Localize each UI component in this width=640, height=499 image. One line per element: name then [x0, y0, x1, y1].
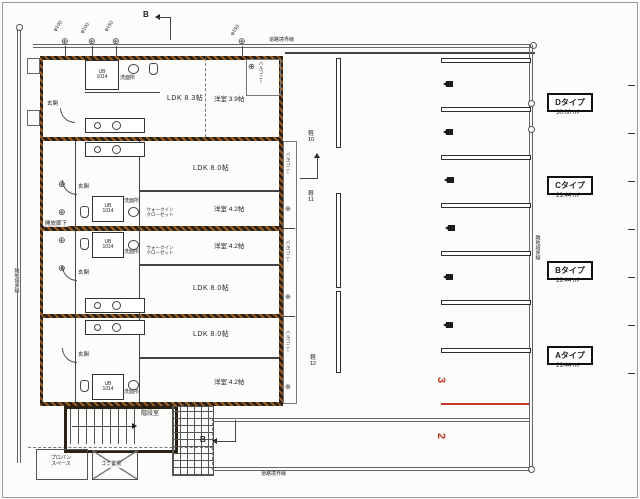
closet-label-line2: クローゼット — [147, 250, 174, 255]
sink-icon — [94, 146, 101, 153]
pipe-icon: ⊕ — [238, 37, 246, 46]
wall-unit-divider — [43, 137, 279, 141]
stairwell-label: 階段室 — [140, 411, 160, 418]
boundary-label-neighbor-left: 隣地境界線 — [12, 268, 20, 293]
unit-bath: UB 1014 — [92, 374, 124, 400]
drain-icon: ⊕ — [58, 208, 66, 217]
dimension-tick — [628, 133, 635, 134]
room-label-bedroom: 洋室 3.9帖 — [214, 96, 244, 103]
room-label-bedroom: 洋室 4.2帖 — [214, 243, 244, 250]
room-partition-line — [140, 264, 279, 266]
balcony-label: バルコニー — [258, 61, 263, 84]
kitchen-counter — [85, 118, 145, 133]
propane-label: プロパン スペース — [40, 456, 82, 467]
parking-space-marker — [447, 177, 454, 183]
burner-icon — [112, 121, 121, 130]
hall-partition-line — [139, 141, 140, 402]
parking-divider-vertical — [336, 58, 341, 148]
wall-left — [40, 56, 43, 406]
section-mark-line — [235, 420, 236, 442]
toilet-icon — [149, 63, 158, 75]
entrance-label: 玄関 — [78, 352, 89, 358]
corridor-label: 開放廊下 — [44, 221, 68, 227]
pipe-stem — [116, 46, 117, 56]
pipe-stem — [92, 46, 93, 56]
type-area-b: 29.44 m² — [547, 278, 589, 284]
parking-divider-vertical — [336, 193, 341, 288]
section-mark-line — [157, 17, 171, 18]
type-area-c: 29.44 m² — [547, 193, 589, 199]
dimension-tick — [628, 85, 635, 86]
boundary-circle — [528, 126, 535, 133]
pipe-stem — [65, 46, 66, 56]
drain-icon: ⊕ — [285, 293, 291, 302]
parking-space-marker — [446, 129, 453, 135]
bath-size-label: 1014 — [102, 387, 113, 393]
meter-box — [27, 58, 40, 74]
burner-icon — [112, 323, 121, 332]
entry-arrow-line — [300, 178, 318, 179]
kei-number: 11 — [303, 197, 319, 203]
parking-divider — [441, 203, 531, 208]
balcony-label: バルコニー — [285, 330, 290, 353]
fence-line-top — [285, 52, 535, 54]
washroom-label: 洗面所 — [120, 76, 135, 82]
washbasin-icon — [128, 380, 139, 390]
boundary-line-left — [17, 27, 21, 463]
washbasin-icon — [128, 64, 139, 74]
stair-runner-line — [72, 426, 132, 427]
unit-bath: UB 1014 — [92, 196, 124, 222]
burner-icon — [112, 145, 121, 154]
section-mark-line — [214, 441, 235, 442]
entrance-label: 玄関 — [78, 270, 89, 276]
kei-number: 10 — [303, 137, 319, 143]
entrance-label: 玄関 — [47, 101, 58, 107]
washbasin-icon — [128, 207, 139, 217]
boundary-label-road-top: 道路境界線 — [268, 38, 295, 44]
unit-bath: UB 1014 — [92, 232, 124, 258]
section-mark-label: B — [200, 436, 206, 445]
balcony-strip — [283, 141, 297, 404]
stair-direction-arrow — [132, 423, 140, 429]
propane-label-line2: スペース — [51, 461, 70, 467]
meter-box — [27, 110, 40, 126]
garbage-label: ゴミ置場 — [100, 462, 122, 468]
room-partition-line — [85, 92, 160, 93]
room-partition-line — [140, 357, 279, 359]
washbasin-icon — [128, 240, 139, 250]
boundary-circle — [528, 100, 535, 107]
balcony-label: バルコニー — [285, 240, 290, 263]
drain-icon: ⊕ — [248, 62, 255, 71]
parking-number-red: 2 — [435, 433, 447, 439]
room-label-ldk: LDK 8.0帖 — [193, 331, 229, 339]
parking-space-marker — [448, 225, 455, 231]
wall-unit-divider — [43, 314, 279, 318]
parking-divider — [441, 300, 531, 305]
balcony-label: バルコニー — [285, 152, 290, 175]
balcony-divider — [283, 316, 295, 317]
kitchen-counter — [85, 298, 145, 313]
dimension-tick — [628, 277, 635, 278]
room-label-ldk: LDK 8.3帖 — [167, 95, 203, 103]
section-mark-line — [170, 17, 171, 40]
dimension-tick — [628, 229, 635, 230]
sink-icon — [94, 122, 101, 129]
type-area-a: 29.44 m² — [547, 363, 589, 369]
dimension-tick — [628, 373, 635, 374]
pipe-icon: ⊕ — [61, 37, 69, 46]
entrance-label: 玄関 — [78, 184, 89, 190]
balcony-divider — [283, 228, 295, 229]
drain-icon: ⊕ — [58, 180, 66, 189]
parking-space-label: 軽 10 — [303, 131, 319, 143]
toilet-icon — [80, 380, 89, 392]
kei-number: 12 — [305, 361, 321, 367]
washroom-label: 洗面所 — [124, 250, 139, 256]
wall-unit-divider — [43, 226, 279, 231]
toilet-icon — [80, 238, 89, 250]
parking-divider-vertical — [336, 291, 341, 373]
closet-label-line2: クローゼット — [147, 212, 174, 217]
room-label-bedroom: 洋室 4.2帖 — [214, 379, 244, 386]
closet-label: ウォークイン クローゼット — [144, 246, 176, 256]
parking-divider — [441, 155, 531, 160]
room-label-ldk: LDK 8.0帖 — [193, 165, 229, 173]
toilet-icon — [80, 206, 89, 218]
parking-space-label: 軽 11 — [303, 191, 319, 203]
parking-space-marker — [446, 322, 453, 328]
dimension-tick — [628, 325, 635, 326]
drain-icon: ⊕ — [58, 264, 66, 273]
boundary-line-top — [33, 44, 536, 48]
pipe-stem — [242, 46, 243, 56]
room-label-bedroom: 洋室 4.2帖 — [214, 206, 244, 213]
parking-divider-red — [441, 403, 529, 405]
drain-icon: ⊕ — [285, 205, 291, 214]
burner-icon — [112, 301, 121, 310]
parking-divider — [441, 107, 531, 112]
dimension-tick — [628, 181, 635, 182]
closet-label: ウォークイン クローゼット — [144, 208, 176, 218]
washroom-label: 洗面所 — [124, 390, 139, 396]
type-area-d: 30.00 m² — [547, 110, 589, 116]
sink-icon — [94, 324, 101, 331]
room-partition-line — [140, 190, 279, 192]
kitchen-counter — [85, 142, 145, 157]
boundary-corner-circle — [16, 24, 23, 31]
parking-number-red: 3 — [435, 377, 447, 383]
bath-size-label: 1014 — [102, 209, 113, 215]
section-mark-label: B — [143, 11, 149, 20]
paved-approach-grid — [172, 406, 214, 476]
parking-space-label: 軽 12 — [305, 355, 321, 367]
parking-divider — [441, 58, 531, 63]
road-edge-line — [213, 418, 530, 422]
parking-space-marker — [446, 81, 453, 87]
boundary-label-neighbor-right: 隣地境界線 — [533, 235, 541, 260]
room-dashed-divider — [205, 58, 206, 137]
pipe-icon: ⊕ — [112, 37, 120, 46]
boundary-label-road-bottom: 道路境界線 — [260, 472, 287, 478]
pipe-icon: ⊕ — [88, 37, 96, 46]
parking-divider — [441, 348, 531, 353]
floor-plan-page: 道路境界線 隣地境界線 隣地境界線 道路境界線 φ100 ⊕ φ100 ⊕ φ1… — [0, 0, 640, 499]
room-label-ldk: LDK 8.0帖 — [193, 285, 229, 293]
bath-size-label: 1014 — [96, 75, 107, 81]
sink-icon — [94, 302, 101, 309]
unit-bath: UB 1014 — [85, 60, 119, 90]
parking-divider — [441, 251, 531, 256]
parking-space-marker — [446, 274, 453, 280]
entry-arrow-line — [317, 155, 318, 179]
kitchen-counter — [85, 320, 145, 335]
drain-icon: ⊕ — [285, 383, 291, 392]
bath-size-label: 1014 — [102, 245, 113, 251]
washroom-label: 洗面所 — [124, 199, 139, 205]
drain-icon: ⊕ — [58, 236, 66, 245]
